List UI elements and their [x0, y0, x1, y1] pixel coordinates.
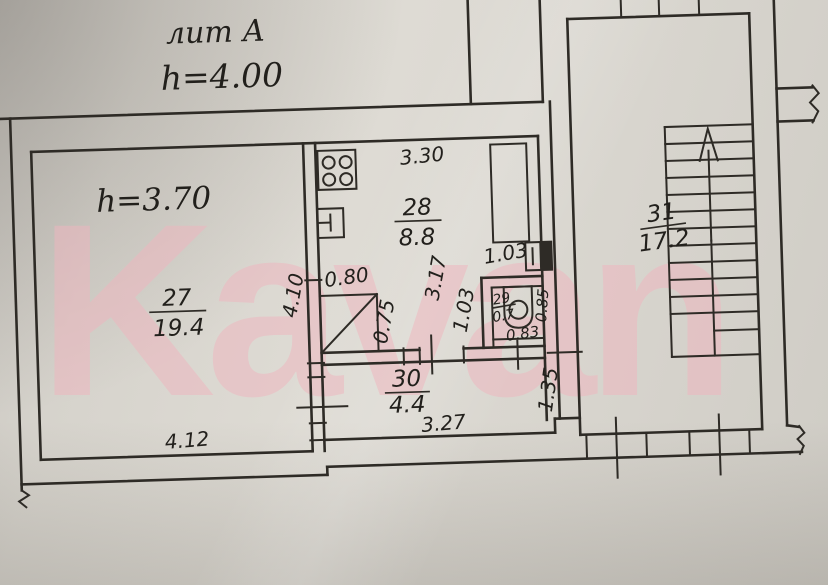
- dim-bath-right: 0.85: [532, 288, 552, 323]
- room-28-label: 28 8.8: [394, 194, 443, 251]
- dim-kitchen-depth: 3.17: [420, 254, 452, 302]
- wall-break-mark: [19, 490, 30, 507]
- room-27-number: 27: [162, 285, 192, 312]
- dim-closet-depth: 0.75: [368, 297, 400, 345]
- dim-room27-wall: 4.10: [277, 271, 309, 319]
- stove-icon: [317, 150, 356, 190]
- wall-break-mark: [797, 426, 805, 454]
- niche-sink-icon: [525, 242, 552, 271]
- room-27-area: 19.4: [153, 315, 205, 343]
- liter-label: лит А: [165, 14, 265, 52]
- header: лит А h=4.00: [159, 13, 284, 98]
- upper-section-wall: [540, 0, 543, 102]
- stair-flight-divider: [711, 241, 715, 356]
- dim-room27-bottom: 4.12: [164, 426, 210, 454]
- floor-height-label: h=4.00: [160, 55, 284, 98]
- dim-bath-left: 1.03: [448, 286, 480, 334]
- room-31-area: 17.2: [637, 225, 691, 258]
- dimension-tick: [431, 335, 432, 373]
- room-30-number: 30: [391, 366, 421, 393]
- dim-bath-bottom: 0.83: [505, 322, 541, 344]
- dim-niche-width: 1.03: [482, 238, 530, 269]
- dim-closet-width: 0.80: [323, 262, 370, 292]
- room-29-area: 0.7: [491, 306, 516, 326]
- dim-kitchen-width: 3.30: [399, 142, 446, 170]
- dimension-tick: [719, 414, 721, 474]
- dimension-tick: [297, 406, 347, 408]
- door-jamb: [404, 348, 405, 364]
- staircase-block-walls: [566, 0, 828, 479]
- photographed-floor-plan: Kavan: [0, 0, 828, 585]
- room-28-number: 28: [402, 194, 432, 221]
- room-31-number: 31: [645, 198, 678, 228]
- room-28-area: 8.8: [398, 224, 435, 251]
- door-jamb: [420, 348, 421, 364]
- room-30-label: 30 4.4: [384, 366, 431, 419]
- room-31-label: 31 17.2: [633, 197, 691, 257]
- closet-with-diagonal: [320, 294, 379, 353]
- dim-hall-bottom: 3.27: [420, 409, 467, 437]
- door-jamb: [463, 346, 464, 362]
- kitchen-sink-icon: [317, 208, 344, 238]
- kitchen-cupboard: [490, 143, 529, 242]
- room-27-label: 27 19.4: [148, 285, 207, 343]
- room-29-label: 29 0.7: [488, 289, 518, 326]
- dimension-tick: [616, 418, 618, 478]
- room27-ceiling-height: h=3.70: [96, 180, 212, 220]
- upper-section-wall: [468, 0, 471, 104]
- floor-plan-drawing: лит А h=4.00 h=3.70 27 19.4 28 8.8 29 0.…: [0, 0, 828, 585]
- dimension-tick: [517, 341, 518, 369]
- wall-break-mark: [809, 85, 819, 122]
- up-arrow-icon: [699, 128, 721, 241]
